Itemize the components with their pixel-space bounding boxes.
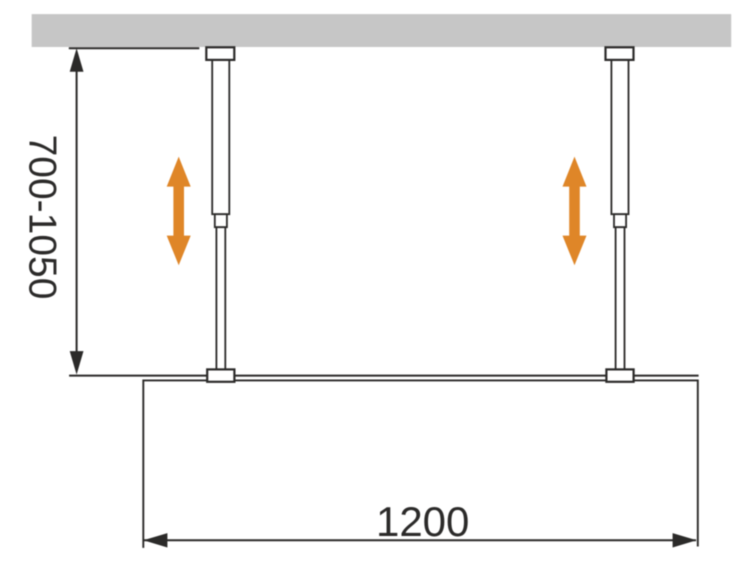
svg-text:700-1050: 700-1050 xyxy=(21,135,64,300)
svg-text:1200: 1200 xyxy=(376,498,469,545)
